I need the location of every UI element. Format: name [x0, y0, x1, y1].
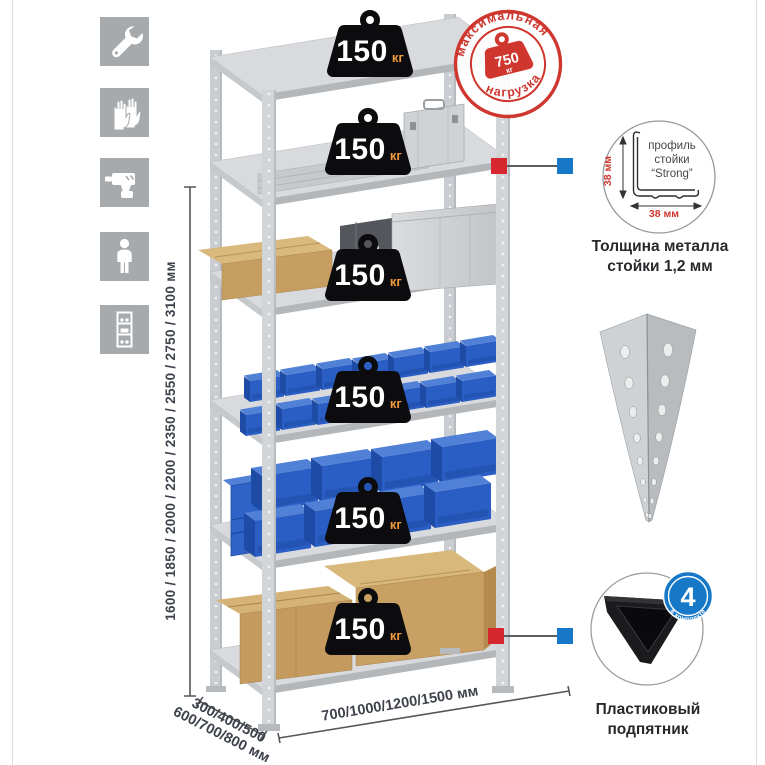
shelf-load-badge: 150кг	[320, 9, 420, 83]
load-unit: кг	[390, 396, 402, 411]
shelf-load-badge: 150кг	[318, 107, 418, 181]
blue-marker-top	[557, 158, 573, 174]
profile-caption-line1: Толщина металла	[572, 237, 748, 257]
load-unit: кг	[390, 274, 402, 289]
load-unit: кг	[390, 148, 402, 163]
load-unit: кг	[390, 517, 402, 532]
profile-dim-vertical: 38 мм	[602, 149, 614, 193]
shelf-load-badge: 150кг	[318, 355, 418, 429]
profile-label-line3: “Strong”	[632, 167, 712, 181]
profile-caption-line2: стойки 1,2 мм	[572, 257, 748, 277]
profile-dim-horizontal: 38 мм	[640, 208, 688, 220]
profile-label: профиль стойки “Strong”	[632, 139, 712, 181]
load-value: 150	[334, 502, 386, 536]
product-infographic: 4 в комплекте 150кг 150кг 150кг	[0, 0, 765, 765]
height-dimension-label: 1600 / 1850 / 2000 / 2200 / 2350 / 2550 …	[163, 211, 181, 671]
load-value: 150	[334, 259, 386, 293]
blue-marker-bottom	[557, 628, 573, 644]
shelf-load-badge: 150кг	[318, 587, 418, 661]
foot-caption-line1: Пластиковый	[560, 700, 736, 720]
plastic-foot-circle: 4 в комплекте	[591, 572, 713, 686]
badge-count: 4	[680, 582, 695, 612]
foot-caption-line2: подпятник	[560, 720, 736, 740]
load-value: 150	[336, 35, 388, 69]
load-unit: кг	[392, 50, 404, 65]
load-value: 150	[334, 133, 386, 167]
profile-caption: Толщина металла стойки 1,2 мм	[572, 237, 748, 277]
load-value: 150	[334, 381, 386, 415]
angle-post-photo	[600, 314, 696, 522]
load-unit: кг	[390, 628, 402, 643]
red-marker-top	[491, 158, 507, 174]
shelf-load-badge: 150кг	[318, 233, 418, 307]
shelf-load-badge: 150кг	[318, 476, 418, 550]
profile-label-line1: профиль	[632, 139, 712, 153]
profile-label-line2: стойки	[632, 153, 712, 167]
red-marker-bottom	[488, 628, 504, 644]
foot-caption: Пластиковый подпятник	[560, 700, 736, 740]
load-value: 150	[334, 613, 386, 647]
